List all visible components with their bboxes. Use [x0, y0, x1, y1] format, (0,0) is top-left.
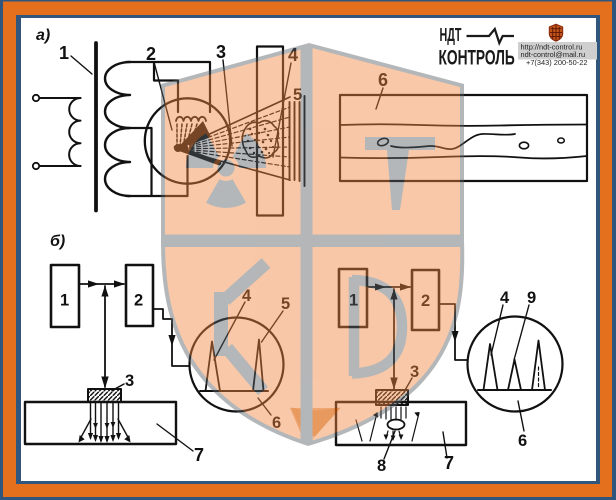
svg-text:2: 2 — [134, 292, 143, 310]
svg-text:9: 9 — [527, 289, 536, 307]
svg-text:б): б) — [50, 233, 65, 250]
svg-text:+7(343) 200-50-22: +7(343) 200-50-22 — [526, 58, 587, 67]
svg-text:2: 2 — [146, 44, 156, 64]
svg-text:НДТ: НДТ — [440, 25, 462, 46]
svg-text:КОНТРОЛЬ: КОНТРОЛЬ — [439, 46, 516, 70]
svg-text:3: 3 — [216, 42, 226, 62]
svg-text:а): а) — [36, 27, 50, 44]
svg-text:6: 6 — [518, 432, 527, 450]
svg-text:1: 1 — [60, 292, 69, 310]
svg-text:3: 3 — [125, 372, 134, 390]
svg-text:4: 4 — [500, 289, 510, 307]
svg-text:7: 7 — [444, 453, 454, 473]
svg-text:8: 8 — [377, 457, 386, 475]
svg-text:7: 7 — [194, 445, 204, 465]
svg-text:1: 1 — [59, 43, 69, 63]
